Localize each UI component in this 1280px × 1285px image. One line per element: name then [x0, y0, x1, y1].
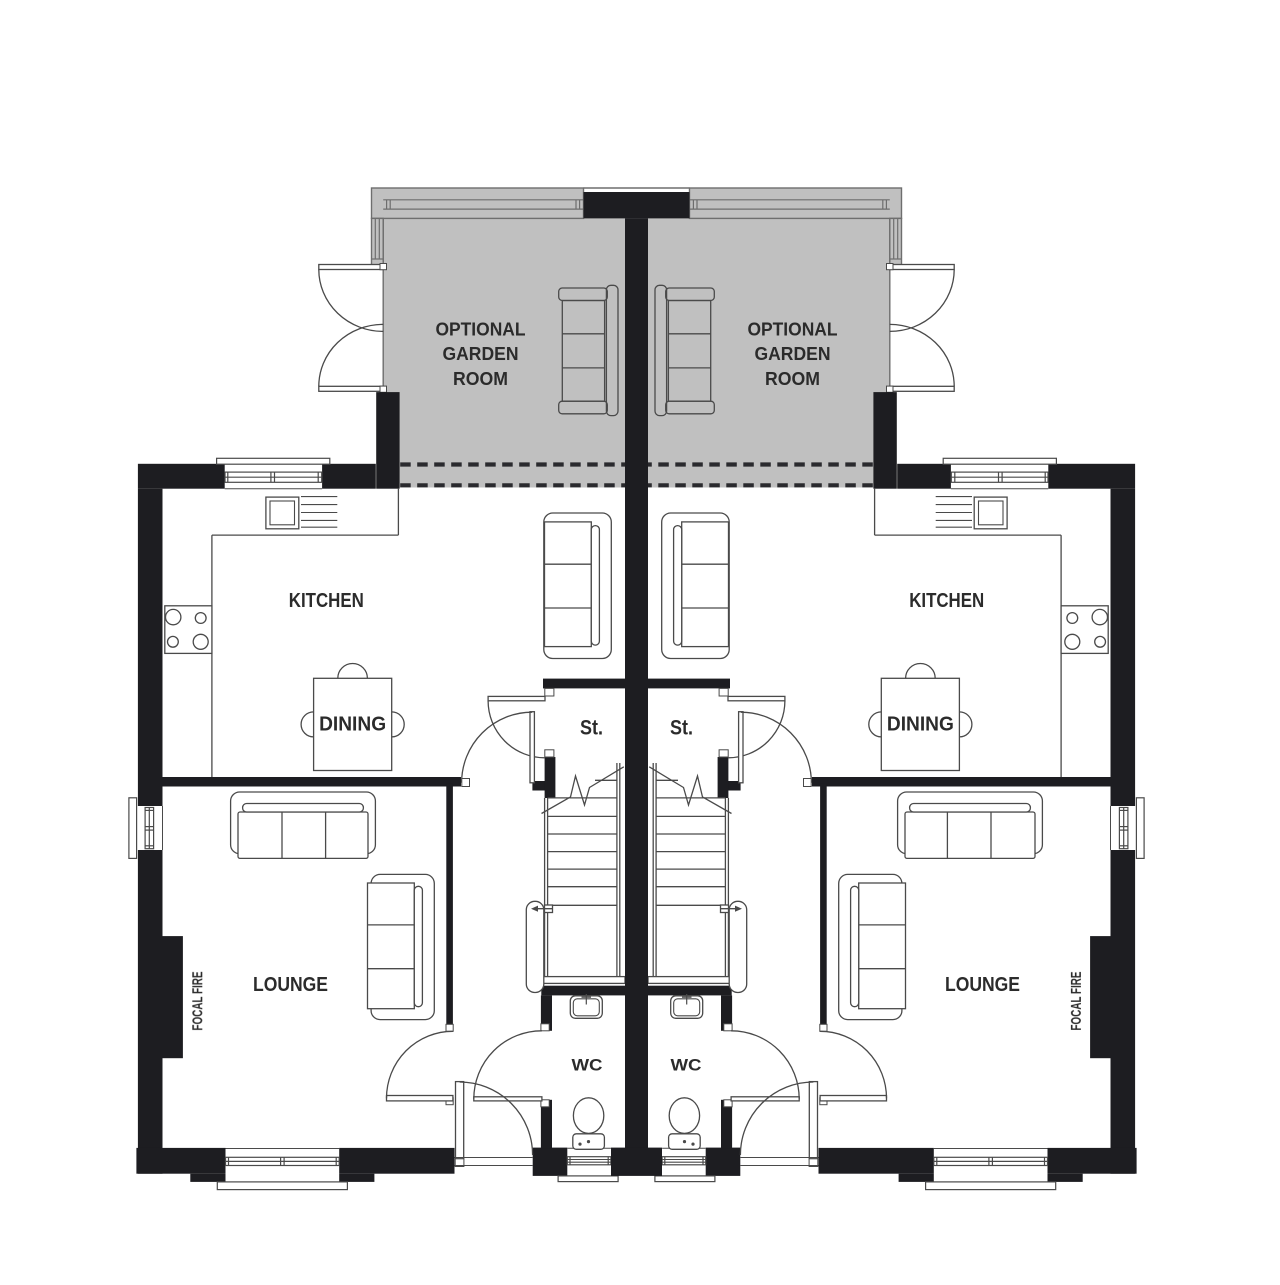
- svg-text:OPTIONAL: OPTIONAL: [435, 319, 525, 339]
- svg-text:St.: St.: [670, 716, 693, 739]
- svg-text:ROOM: ROOM: [765, 369, 820, 389]
- svg-text:GARDEN: GARDEN: [754, 344, 830, 364]
- svg-text:WC: WC: [571, 1055, 602, 1074]
- svg-text:DINING: DINING: [887, 713, 954, 735]
- svg-text:WC: WC: [670, 1055, 701, 1074]
- svg-text:St.: St.: [580, 716, 603, 739]
- svg-text:OPTIONAL: OPTIONAL: [747, 319, 837, 339]
- svg-text:LOUNGE: LOUNGE: [253, 974, 328, 996]
- svg-text:ROOM: ROOM: [453, 369, 508, 389]
- svg-text:DINING: DINING: [319, 713, 386, 735]
- svg-text:KITCHEN: KITCHEN: [909, 590, 984, 612]
- svg-text:FOCAL FIRE: FOCAL FIRE: [189, 972, 206, 1031]
- svg-text:KITCHEN: KITCHEN: [289, 590, 364, 612]
- svg-text:LOUNGE: LOUNGE: [945, 974, 1020, 996]
- svg-text:GARDEN: GARDEN: [442, 344, 518, 364]
- svg-text:FOCAL FIRE: FOCAL FIRE: [1068, 972, 1085, 1031]
